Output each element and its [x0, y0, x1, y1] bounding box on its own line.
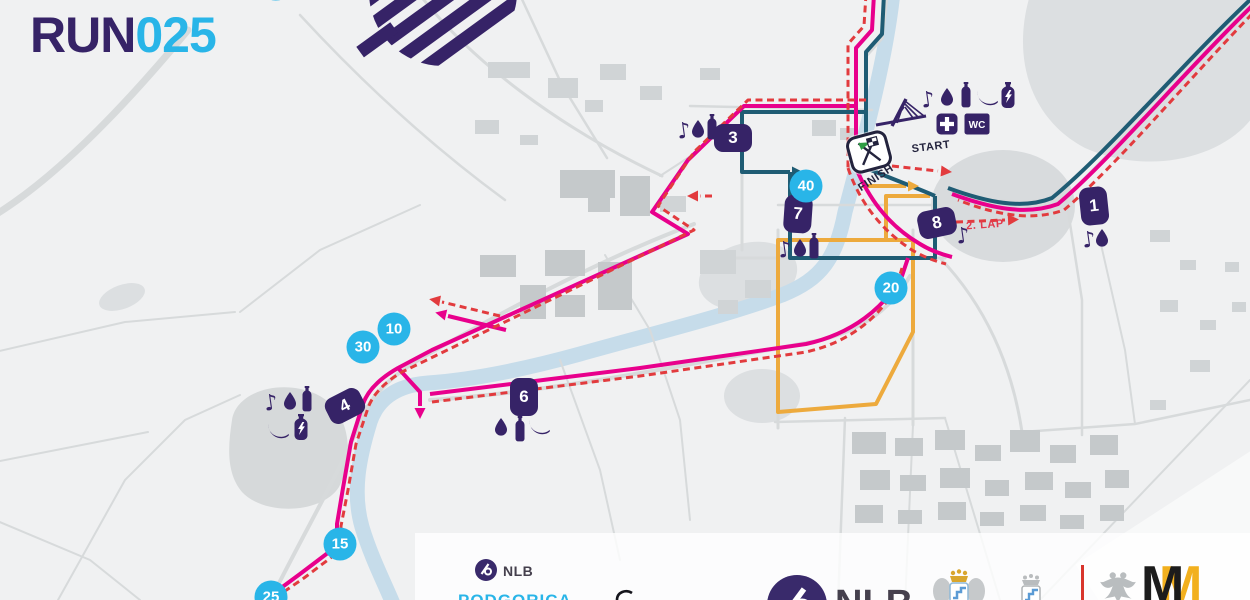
drop-icon-marker — [1095, 229, 1109, 247]
drop-icon-marker — [793, 239, 807, 257]
music-icon-marker: ♪ — [778, 240, 792, 262]
km-marker-20: 20 — [875, 272, 908, 305]
station-badge-6: 6 — [510, 378, 538, 416]
music-note-icon: ♪ — [263, 392, 280, 416]
nlb-big-label: NLB — [835, 583, 913, 600]
wc-icon: WC — [965, 114, 990, 135]
music-icon-marker: ♪ — [1082, 230, 1096, 252]
banana-icon — [267, 423, 289, 439]
energy-drink-icon — [294, 414, 309, 440]
banana-icon-marker — [528, 419, 550, 435]
nlb-big-logo-icon — [767, 575, 827, 600]
drop-icon-marker — [691, 120, 705, 138]
banana-icon-marker — [976, 90, 998, 106]
water-drop-icon — [494, 418, 508, 436]
nlb-small-logo-icon — [475, 559, 497, 581]
podgorica-coat-of-arms — [930, 567, 988, 600]
energy-icon-marker — [1001, 82, 1016, 108]
map-label-2-lap: 2. LAP — [966, 218, 1005, 233]
bottle-icon — [515, 416, 526, 442]
bottle-icon — [809, 233, 820, 259]
water-drop-icon — [1095, 229, 1109, 247]
km-marker-25: 25 — [255, 581, 288, 600]
millennium-bridge-icon — [875, 97, 927, 127]
marker-layer: ♪WC♪♪♪♪♪134678402030101525STARTFINISH2. … — [0, 0, 1250, 600]
station-badge-3: 3 — [714, 124, 752, 152]
water-drop-icon — [793, 239, 807, 257]
montenegro-emblem — [1098, 569, 1138, 600]
bottle-icon-marker — [515, 416, 526, 442]
svg-text:WC: WC — [969, 120, 986, 131]
drop-icon-marker — [494, 418, 508, 436]
bridge-icon-marker — [875, 97, 927, 127]
title-run: RUN — [30, 7, 135, 63]
music-note-icon: ♪ — [676, 120, 693, 144]
wc-icon-marker: WC — [965, 114, 990, 135]
striped-globe-logo — [348, 0, 523, 72]
map-label-start: START — [911, 139, 951, 156]
mm-logo-m2: M — [1141, 559, 1184, 600]
bottle-icon-marker — [809, 233, 820, 259]
station-badge-1: 1 — [1078, 186, 1110, 227]
station-badge-4: 4 — [322, 385, 369, 427]
km-marker-40: 40 — [790, 170, 823, 203]
km-marker-10: 10 — [378, 313, 411, 346]
partial-logo — [615, 588, 633, 600]
title-year: 025 — [135, 7, 215, 63]
km-marker-15: 15 — [324, 528, 357, 561]
divider — [1081, 565, 1084, 600]
nlb-small-label: NLB — [503, 563, 533, 579]
banana-icon — [976, 90, 998, 106]
bottle-icon-marker — [961, 82, 972, 108]
title-line2: RUN025 — [30, 10, 334, 60]
medical-icon-marker — [937, 114, 958, 135]
music-note-icon: ♪ — [777, 239, 794, 263]
water-drop-icon — [691, 120, 705, 138]
bottle-icon — [961, 82, 972, 108]
energy-icon-marker — [294, 414, 309, 440]
sponsor-bar: NLB PODGORICA NLB — [415, 533, 1250, 600]
station-badge-8: 8 — [916, 205, 959, 240]
drop-icon-marker — [283, 392, 297, 410]
music-icon-marker: ♪ — [264, 393, 278, 415]
banana-icon-marker — [267, 423, 289, 439]
music-icon-marker: ♪ — [677, 121, 691, 143]
first-aid-icon — [937, 114, 958, 135]
bottle-icon — [302, 386, 313, 412]
drop-icon-marker — [940, 88, 954, 106]
water-drop-icon — [940, 88, 954, 106]
race-route-map: ♪WC♪♪♪♪♪134678402030101525STARTFINISH2. … — [0, 0, 1250, 600]
banana-icon — [528, 419, 550, 435]
energy-drink-icon — [1001, 82, 1016, 108]
nlb-podgorica-label: PODGORICA — [458, 591, 572, 600]
event-title: MILLENNIUM RUN025 — [30, 0, 334, 60]
water-drop-icon — [283, 392, 297, 410]
city-coat-of-arms — [1007, 573, 1055, 600]
bottle-icon-marker — [302, 386, 313, 412]
km-marker-30: 30 — [347, 331, 380, 364]
